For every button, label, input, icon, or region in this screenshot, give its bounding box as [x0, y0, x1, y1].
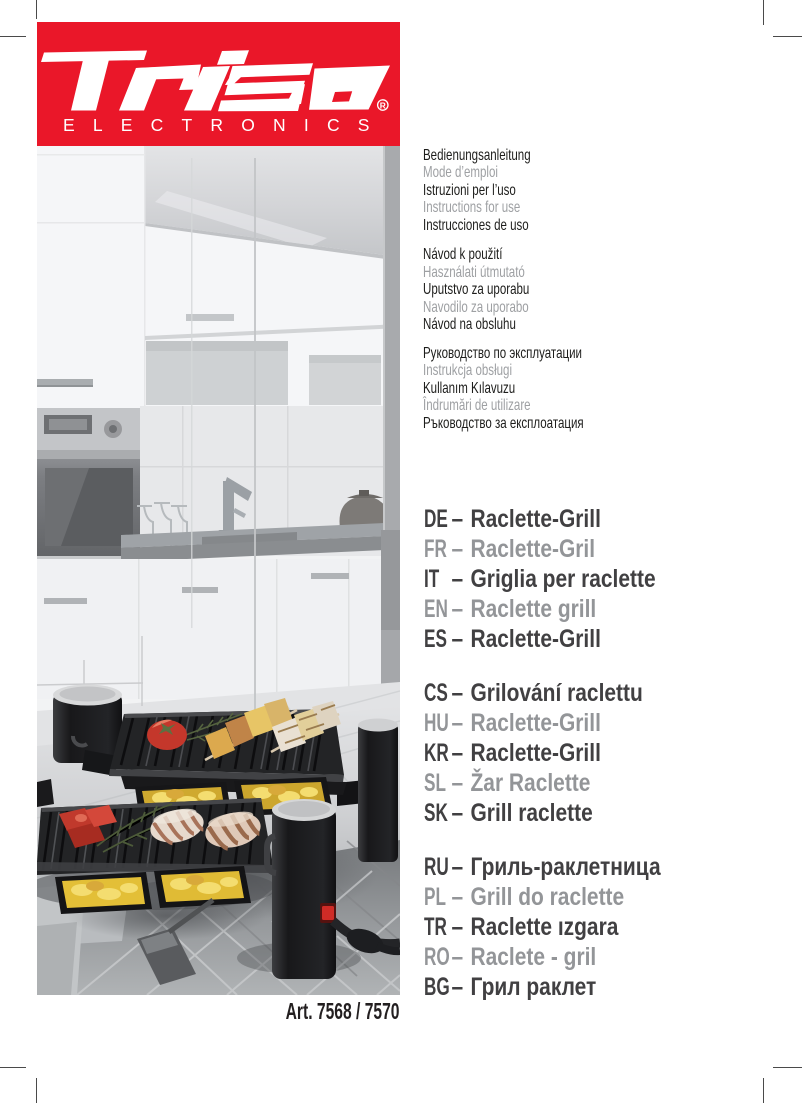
svg-text:ELECTRONICS: ELECTRONICS	[63, 115, 388, 135]
svg-text:R: R	[380, 101, 386, 111]
